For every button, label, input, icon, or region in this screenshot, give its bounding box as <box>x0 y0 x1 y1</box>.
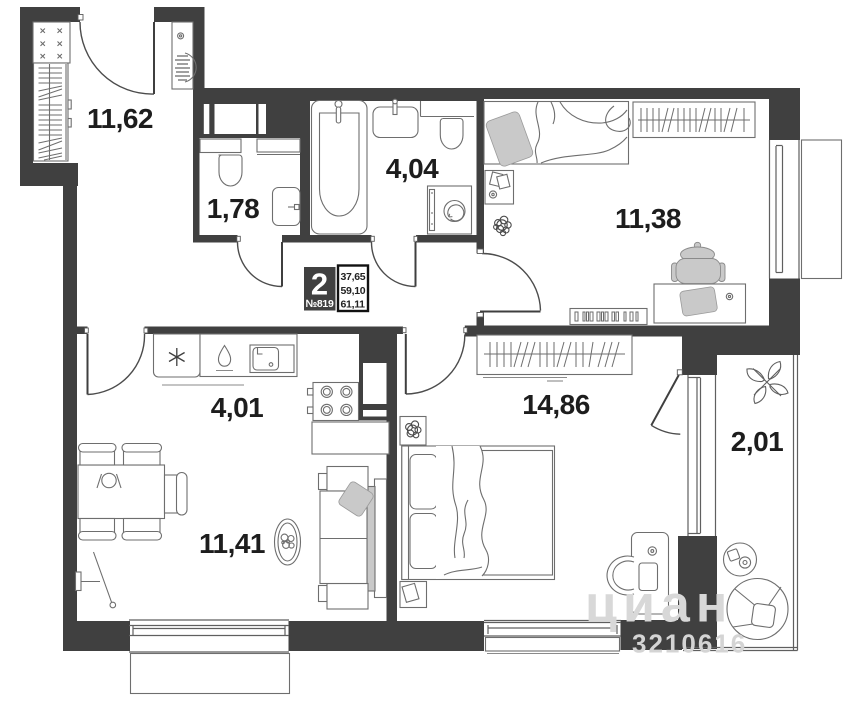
svg-text:11,38: 11,38 <box>615 203 681 234</box>
svg-text:циан: циан <box>585 576 733 634</box>
svg-text:11,41: 11,41 <box>199 528 265 559</box>
svg-text:4,04: 4,04 <box>386 153 439 184</box>
svg-text:37,65: 37,65 <box>341 271 366 283</box>
svg-text:№819: №819 <box>305 298 333 310</box>
svg-text:1,78: 1,78 <box>207 193 260 224</box>
svg-text:59,10: 59,10 <box>341 285 366 297</box>
svg-text:2: 2 <box>311 267 328 302</box>
svg-text:61,11: 61,11 <box>341 299 366 311</box>
svg-text:4,01: 4,01 <box>211 392 264 423</box>
svg-text:14,86: 14,86 <box>522 389 590 420</box>
svg-text:11,62: 11,62 <box>87 103 153 134</box>
svg-text:2,01: 2,01 <box>731 426 784 457</box>
svg-text:3210616: 3210616 <box>632 629 747 659</box>
